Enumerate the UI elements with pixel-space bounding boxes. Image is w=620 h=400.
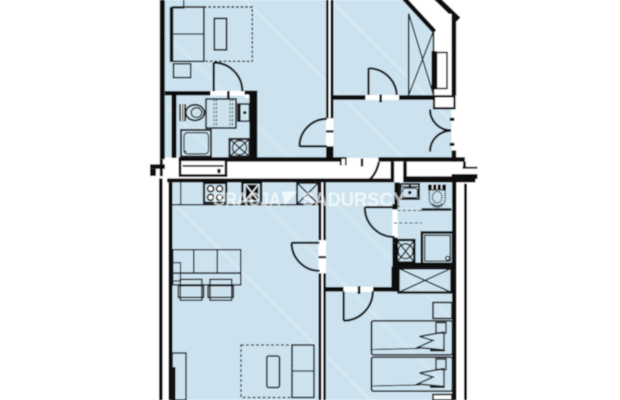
svg-text:SADURSCY: SADURSCY: [302, 189, 405, 211]
svg-text:GRACJA: GRACJA: [213, 189, 281, 211]
